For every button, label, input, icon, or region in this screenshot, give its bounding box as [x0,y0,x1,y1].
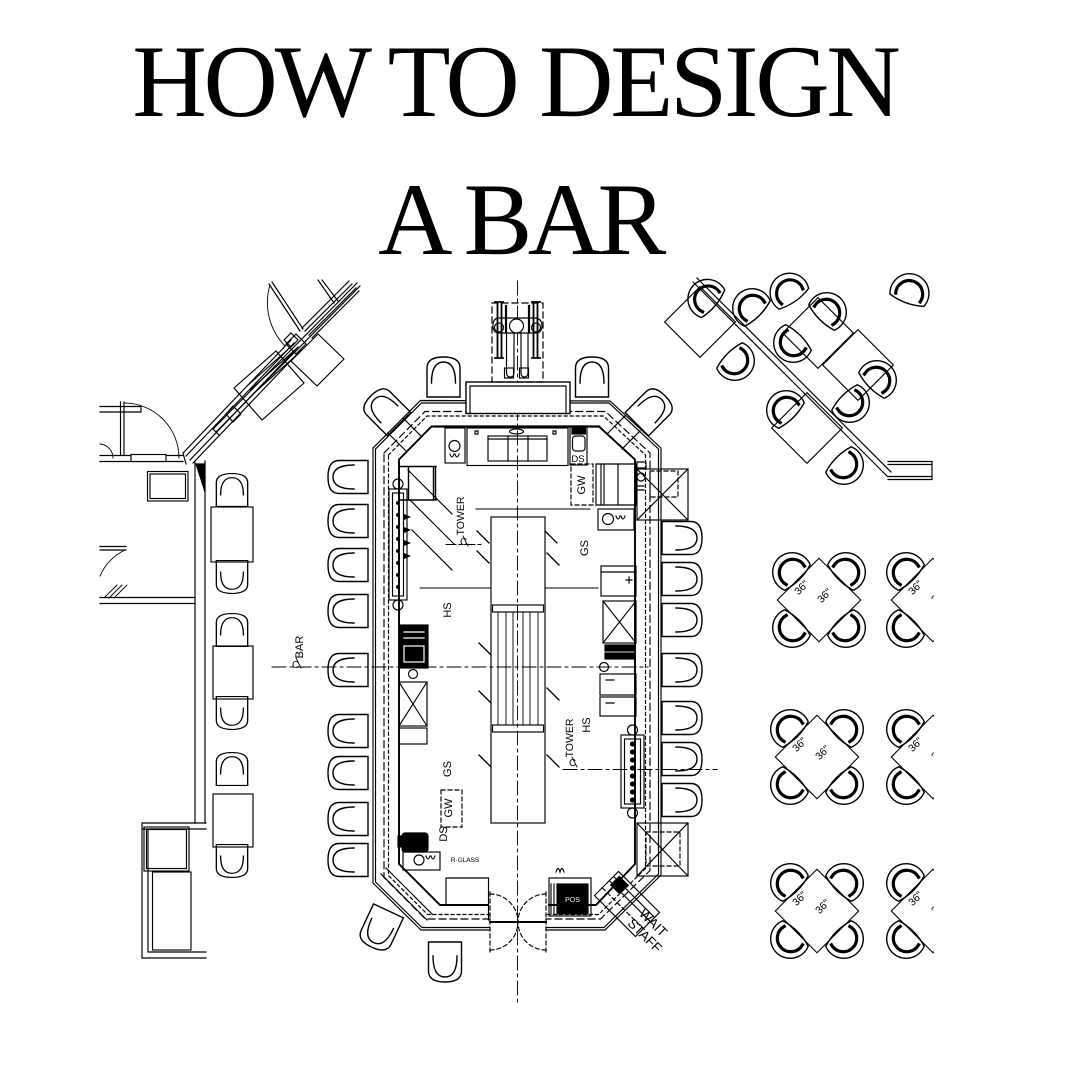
svg-text:R·GLASS: R·GLASS [451,857,480,864]
svg-text:BAR: BAR [294,636,306,659]
svg-text:TOWER: TOWER [455,496,467,535]
svg-text:DS: DS [438,826,450,841]
svg-text:GS: GS [442,761,454,777]
svg-text:POS: POS [565,897,580,904]
svg-text:A BAR: A BAR [378,163,667,277]
svg-text:TOWER: TOWER [564,718,576,757]
svg-text:DS: DS [571,454,584,465]
svg-text:GW: GW [443,798,455,818]
svg-text:GW: GW [576,475,588,495]
svg-text:HS: HS [442,602,454,617]
svg-text:HS: HS [581,717,593,732]
svg-text:HOW TO DESIGN: HOW TO DESIGN [132,25,899,139]
svg-text:GS: GS [579,540,591,556]
